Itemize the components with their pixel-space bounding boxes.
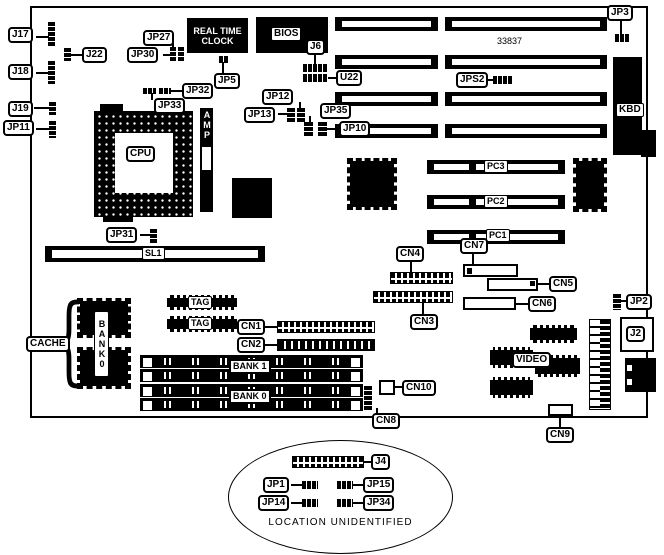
label-jp10: JP10 — [339, 121, 370, 137]
amp-label: AMP — [202, 110, 212, 140]
io-chip-qfp — [573, 158, 607, 212]
connector-jp3 — [615, 34, 629, 42]
label-jps2: JPS2 — [456, 72, 488, 88]
isa-slot-segment — [335, 92, 438, 106]
label-cn3: CN3 — [410, 314, 438, 330]
label-bank0: BANK 0 — [229, 389, 271, 404]
label-j6: J6 — [306, 39, 325, 55]
label-pc3: PC3 — [484, 160, 508, 173]
cpu-socket-tab-bottom — [103, 217, 133, 222]
pointer-line — [309, 116, 311, 123]
cache-bank-label: BANK0 — [94, 311, 109, 377]
label-j2: J2 — [626, 326, 645, 342]
connector-jp31 — [150, 229, 157, 243]
keyboard-din-port — [641, 130, 656, 157]
connector-j22 — [64, 48, 71, 61]
pointer-line — [140, 234, 150, 236]
label-jp3: JP3 — [607, 5, 633, 21]
tag-label: TAG — [188, 296, 212, 309]
label-jp15: JP15 — [363, 477, 394, 493]
label-jp12: JP12 — [262, 89, 293, 105]
pointer-line — [264, 326, 277, 328]
cn4-header — [390, 272, 453, 284]
label-jp31: JP31 — [106, 227, 137, 243]
rtc-chip: REAL TIME CLOCK — [187, 18, 248, 53]
cn1-header — [277, 321, 375, 333]
cpu-label: CPU — [126, 146, 155, 162]
cn9-connector — [548, 404, 573, 416]
connector-jp11 — [49, 121, 56, 138]
cn8-connector — [364, 386, 372, 410]
label-jp35: JP35 — [320, 103, 351, 119]
label-j4: J4 — [371, 454, 390, 470]
label-j22: J22 — [82, 47, 107, 63]
pointer-line — [163, 54, 171, 56]
isa-slot-segment — [335, 55, 438, 69]
label-cn5: CN5 — [549, 276, 577, 292]
label-cn7: CN7 — [460, 238, 488, 254]
label-jp13: JP13 — [244, 107, 275, 123]
pointer-line — [151, 93, 153, 100]
label-jp30: JP30 — [127, 47, 158, 63]
label-sl1: SL1 — [142, 247, 165, 260]
cn6-connector — [463, 297, 516, 310]
pointer-line — [36, 128, 50, 130]
feature-pin-header — [589, 319, 611, 410]
label-cache: CACHE — [26, 336, 70, 352]
connector-j18 — [48, 61, 55, 84]
external-port — [625, 358, 656, 392]
j4-header — [292, 456, 364, 468]
connector-jp35 — [304, 122, 313, 137]
label-cn2: CN2 — [237, 337, 265, 353]
cn7-connector — [463, 264, 518, 277]
connector-jp2 — [613, 294, 621, 310]
pointer-line — [291, 502, 302, 504]
label-jp32: JP32 — [182, 83, 213, 99]
label-cn6: CN6 — [528, 296, 556, 312]
connector-u22 — [303, 74, 328, 82]
connector-j19 — [49, 102, 56, 115]
isa-slot-segment — [445, 92, 607, 106]
chipset-qfp — [347, 158, 397, 210]
pointer-line — [36, 72, 49, 74]
isa-slot-segment — [445, 124, 607, 138]
isa-slot-segment — [335, 17, 438, 31]
label-cn4: CN4 — [396, 246, 424, 262]
board-part-number: 33837 — [497, 36, 522, 46]
motherboard-diagram: J17 J18 J19 JP11 J22 JP27 JP30 JP32 JP33… — [0, 0, 664, 555]
bios-chip-label: BIOS — [271, 27, 301, 41]
video-ram-chip — [530, 325, 577, 343]
amp-window — [202, 147, 211, 170]
pointer-line — [620, 20, 622, 34]
label-pc1: PC1 — [486, 229, 510, 242]
label-jp5: JP5 — [214, 73, 240, 89]
amp-regulator: AMP — [200, 108, 213, 212]
tag-label: TAG — [188, 317, 212, 330]
cn5-connector — [487, 278, 538, 291]
connector-jp33 — [143, 88, 156, 94]
connector-jps2 — [493, 76, 512, 84]
pointer-line — [299, 102, 301, 109]
connector-jp14 — [302, 499, 318, 507]
connector-j6 — [303, 64, 328, 72]
label-cn10: CN10 — [402, 380, 436, 396]
cn3-header — [373, 291, 453, 303]
label-u22: U22 — [336, 70, 362, 86]
pointer-line — [36, 36, 49, 38]
pointer-line — [34, 107, 50, 109]
label-cn1: CN1 — [237, 319, 265, 335]
connector-jp1 — [302, 481, 318, 489]
video-ram-chip — [490, 377, 533, 398]
connector-jp12 — [297, 108, 305, 123]
location-unidentified-text: LOCATION UNIDENTIFIED — [248, 517, 433, 528]
label-j18: J18 — [8, 64, 33, 80]
connector-j17 — [48, 22, 55, 47]
connector-jp10 — [318, 122, 327, 137]
isa-slot-segment — [445, 17, 607, 31]
label-jp11: JP11 — [3, 120, 34, 136]
chip-square — [232, 178, 272, 218]
cn10-connector — [379, 380, 395, 395]
label-cn8: CN8 — [372, 413, 400, 429]
connector-jp13 — [287, 108, 295, 123]
connector-jp15 — [337, 481, 353, 489]
label-bank1: BANK 1 — [229, 359, 271, 374]
label-jp34: JP34 — [363, 495, 394, 511]
pointer-line — [291, 484, 302, 486]
connector-jp27 — [178, 47, 184, 62]
label-jp33: JP33 — [154, 98, 185, 114]
label-jp1: JP1 — [263, 477, 289, 493]
label-pc2: PC2 — [484, 195, 508, 208]
label-jp27: JP27 — [143, 30, 174, 46]
label-jp14: JP14 — [258, 495, 289, 511]
kbd-label: KBD — [616, 103, 644, 117]
cn2-header — [277, 339, 375, 351]
label-cn9: CN9 — [546, 427, 574, 443]
isa-slot-segment — [445, 55, 607, 69]
cpu-socket-center — [115, 133, 173, 193]
label-j19: J19 — [8, 101, 33, 117]
label-j17: J17 — [8, 27, 33, 43]
pointer-line — [264, 344, 277, 346]
connector-jp34 — [337, 499, 353, 507]
label-video: VIDEO — [512, 352, 551, 368]
pointer-line — [278, 113, 288, 115]
label-jp2: JP2 — [626, 294, 652, 310]
